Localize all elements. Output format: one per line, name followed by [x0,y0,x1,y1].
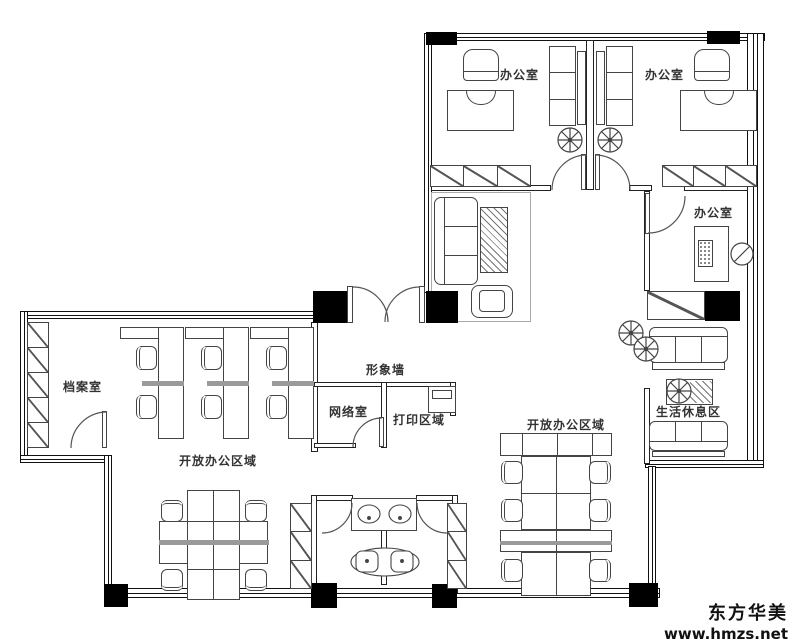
armchair-seat [479,290,505,312]
wall-lower-right [648,466,656,594]
office2-door-leaf [595,154,600,190]
room-label-rest-area: 生活休息区 [656,406,721,418]
bookcase-panel [596,51,605,125]
desk-chair-recess [704,91,734,105]
office-chair [694,49,730,81]
task-chair [136,346,157,370]
column [705,291,740,321]
table-hatch [690,381,712,403]
cluster-table [521,456,591,530]
rug [480,207,508,273]
wall-restroom-partition [381,528,387,585]
storage-shelf [447,503,467,589]
storage-cabinet [430,165,531,187]
room-label-open-office-left: 开放办公区域 [179,455,257,467]
task-chair [501,499,523,522]
room-label-open-office-right: 开放办公区域 [527,419,605,431]
storage-shelf [290,503,312,589]
task-chair [201,346,222,370]
bookcase [549,46,576,126]
archive-shelf [27,322,49,448]
office3-door-leaf [645,193,650,234]
bookcase [606,46,633,126]
task-chair [266,346,287,370]
column [707,31,740,44]
office-chair [463,49,499,81]
column [104,584,128,607]
column [313,291,347,323]
cluster-top-desk [500,433,612,456]
floor-plan: 办公室 办公室 办公室 档案室 形象墙 网络室 打印区域 开放办公区域 开放办公… [0,0,800,640]
entrance-door-leaf [347,286,353,323]
wall-right-step [645,460,764,468]
plant-icon [619,321,643,345]
task-chair [161,500,183,522]
desk-partition [500,541,612,545]
column [426,32,457,45]
room-label-feature-wall: 形象墙 [366,364,405,376]
task-chair [161,569,183,591]
storage-cabinet [647,291,705,320]
sink-counter [351,498,417,531]
sofa [434,197,478,285]
task-chair [201,395,222,419]
task-chair [589,499,611,522]
office-desk [447,90,514,131]
armchair [471,285,513,318]
sofa-plinth [652,362,725,370]
sofa-plinth [652,451,725,457]
task-chair [266,395,287,419]
wall-restroom-top-l [311,495,353,501]
network-door-leaf [379,417,384,447]
room-label-archive: 档案室 [63,381,102,393]
task-chair [245,569,267,591]
plant-icon [558,128,582,152]
task-chair [136,395,157,419]
cluster-table [521,552,591,596]
bookcase-panel [577,51,586,125]
sofa [649,327,728,363]
desk-partition [142,381,184,386]
watermark-url: www.hmzs.net [664,625,788,640]
printer-stand [428,386,456,413]
task-chair [589,461,611,484]
watermark-brand: 东方华美 [664,599,788,625]
room-label-office3: 办公室 [694,207,733,219]
cluster-table [187,490,240,600]
column [311,583,337,608]
room-label-print-area: 打印区域 [393,414,445,426]
sofa [649,421,728,451]
desk-partition [207,381,249,386]
coffee-table [666,379,713,405]
entrance-door-leaf [419,286,425,323]
room-label-office2: 办公室 [645,69,684,81]
column [426,291,458,323]
task-chair [245,500,267,522]
office1-door-leaf [581,154,586,190]
desk-partition [272,381,314,386]
office-desk [680,90,757,131]
room-label-network: 网络室 [329,406,368,418]
desk-equipment [698,240,713,267]
storage-cabinet [662,165,757,187]
wall-leftwing-top [20,311,316,319]
wall-center-spine [586,40,594,190]
printer [432,390,452,399]
task-chair [589,559,611,582]
archive-door-leaf [102,411,107,448]
watermark: 东方华美 www.hmzs.net [664,599,788,640]
office-desk [694,226,729,282]
wall-network-bottom [314,443,356,448]
wall-lower-left [104,455,112,595]
task-chair [501,461,523,484]
plant-icon [598,128,622,152]
desk-partition [159,540,269,545]
room-label-office1: 办公室 [500,69,539,81]
task-chair [501,559,523,582]
wall-left-step [20,455,112,463]
desk-chair-recess [466,91,496,105]
column [629,583,658,607]
